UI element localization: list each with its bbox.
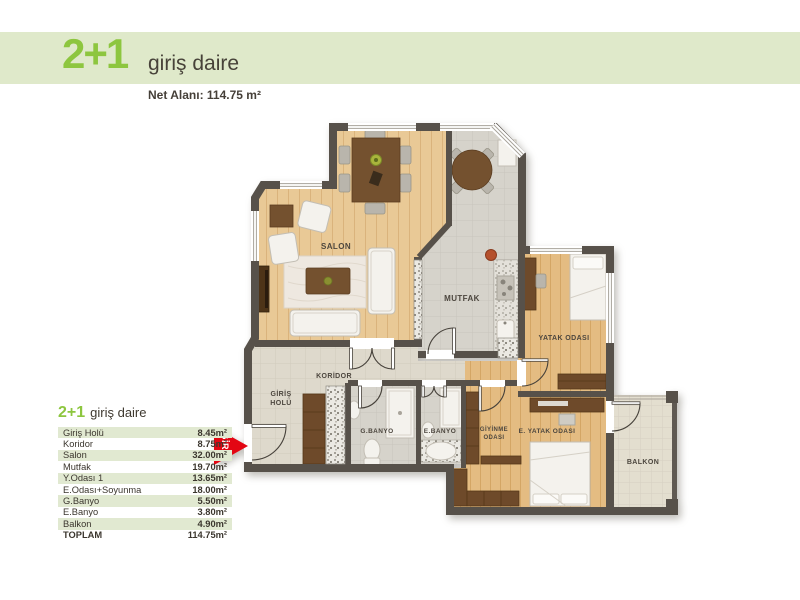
plant [486,250,497,261]
side-table [270,205,293,227]
svg-text:ODASI: ODASI [483,435,504,441]
table-row: E.Odası+Soyunma18.00m² [58,484,232,495]
area-table-title: 2+1giriş daire [58,404,232,422]
table-row: E.Banyo3.80m² [58,507,232,518]
label-giyinme: GİYİNME [480,426,508,433]
area-table-rows: Giriş Holü8.45m² Koridor8.75m² Salon32.0… [58,427,232,541]
door [392,348,395,369]
table-row: Balkon4.90m² [58,518,232,529]
room-area: 5.50m² [198,496,227,506]
table-row: Salon32.00m² [58,450,232,461]
label-giris-holu: GİRİŞ [270,390,291,398]
room-area: 4.90m² [198,519,227,529]
pillow [573,257,603,269]
room-area: 13.65m² [192,473,227,483]
floor-balkon [612,395,674,509]
balcony-wall [672,397,677,509]
shaft [326,386,345,464]
room-area: 8.75m² [198,439,227,449]
svg-text:HOLÜ: HOLÜ [270,398,291,407]
table-row-total: TOPLAM114.75m² [58,530,232,541]
unit-name-title: giriş daire [148,52,239,76]
door [444,386,447,397]
room-name: Koridor [63,439,93,449]
bathtub [426,442,456,460]
room-name: TOPLAM [63,530,102,540]
dining-chair [365,203,385,214]
room-area: 3.80m² [198,507,227,517]
room-area: 8.45m² [198,428,227,438]
door [359,386,362,408]
room-area: 19.70m² [192,462,227,472]
room-area: 18.00m² [192,485,227,495]
dining-chair [400,146,411,164]
label-e-yatak: E. YATAK ODASI [519,428,576,435]
label-g-banyo: G.BANYO [360,428,393,435]
entrance-door [252,425,286,428]
room-name: Mutfak [63,462,91,472]
room-area: 114.75m² [188,530,227,540]
closet [481,456,521,464]
door [612,402,640,405]
room-name: E.Odası+Soyunma [63,485,141,495]
room-name: G.Banyo [63,496,99,506]
wardrobe [558,374,606,389]
door [522,359,548,362]
dining-chair [339,146,350,164]
room-area: 32.00m² [192,450,227,460]
armchair [268,232,299,265]
table-row: Mutfak19.70m² [58,461,232,472]
kitchen-table [452,150,492,190]
dining-chair [339,174,350,192]
page: { "header": { "unit_type": "2+1", "unit_… [0,0,800,600]
door [479,386,482,411]
label-e-banyo: E.BANYO [424,428,456,435]
wardrobe [467,491,519,506]
room-name: E.Banyo [63,507,98,517]
area-table: 2+1giriş daire Giriş Holü8.45m² Koridor8… [58,404,232,541]
label-mutfak: MUTFAK [444,294,480,303]
room-name: Salon [63,450,87,460]
door [453,328,456,354]
label-koridor: KORİDOR [316,372,352,380]
label-salon: SALON [321,242,351,251]
sofa-bottom [290,310,360,336]
label-balkon: BALKON [627,459,659,466]
shaft [414,260,422,339]
table-row: Giriş Holü8.45m² [58,427,232,438]
pillow [533,494,559,504]
table-row: Y.Odası 113.65m² [58,473,232,484]
room-name: Giriş Holü [63,428,104,438]
table-row: Koridor8.75m² [58,438,232,449]
sofa-right [368,248,395,314]
door [422,386,425,397]
floor-plan: SALON MUTFAK KORİDOR GİRİŞ HOLÜ G.BANYO … [200,108,700,538]
dining-chair [400,174,411,192]
desk-chair [536,274,546,288]
entry-wardrobe [303,394,325,464]
pillow [561,494,587,504]
shaft [498,338,518,358]
table-plant [324,277,332,285]
room-name: Y.Odası 1 [63,473,103,483]
table-row: G.Banyo5.50m² [58,495,232,506]
dining-table [352,138,400,202]
net-area-text: Net Alanı: 114.75 m² [148,88,261,102]
door [350,348,353,369]
room-name: Balkon [63,519,91,529]
stool [559,414,575,425]
label-yatak: YATAK ODASI [539,335,590,342]
unit-type-title: 2+1 [62,30,127,78]
